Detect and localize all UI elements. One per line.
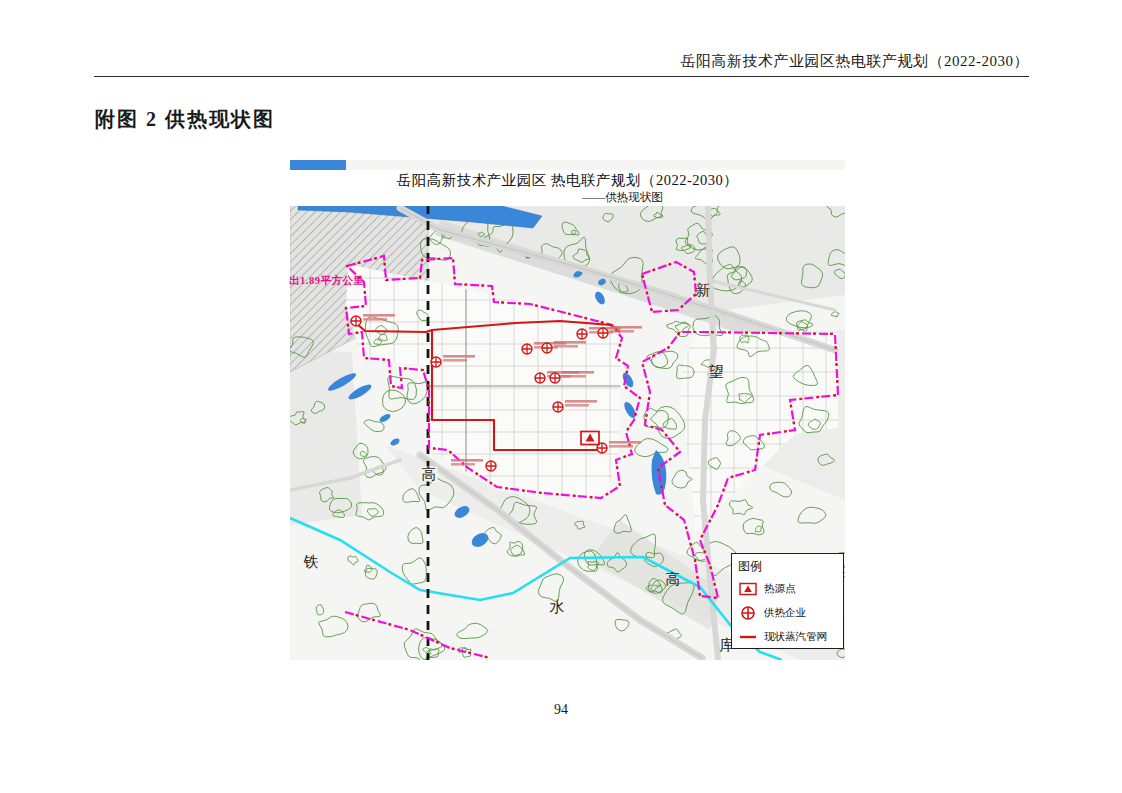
map-place-label: 新 (696, 283, 711, 298)
legend-item: 现状蒸汽管网 (738, 625, 837, 649)
legend-item-label: 供热企业 (764, 606, 806, 620)
area-note-label: 出1.89平方公里 (289, 274, 364, 288)
header-rule (94, 76, 1029, 77)
figure-caption: 附图 2 供热现状图 (95, 106, 275, 133)
map-title: 岳阳高新技术产业园区 热电联产规划（2022-2030） (290, 171, 845, 190)
legend-item-label: 热源点 (764, 582, 796, 596)
map-place-label: 高 (421, 467, 438, 482)
legend-item-label: 现状蒸汽管网 (764, 630, 827, 644)
legend-rows: 热源点供热企业现状蒸汽管网 (738, 577, 837, 649)
document-page: 岳阳高新技术产业园区热电联产规划（2022-2030） 附图 2 供热现状图 岳… (0, 0, 1122, 793)
heat-source-icon (738, 580, 764, 598)
legend-item: 热源点 (738, 577, 837, 601)
map-place-label: 高 (666, 572, 681, 587)
map-place-label: 望 (709, 365, 724, 380)
map-place-label: 铁 (304, 555, 319, 570)
heating-enterprise-icon (738, 604, 764, 622)
legend-title: 图例 (738, 558, 837, 575)
page-number: 94 (0, 702, 1122, 718)
map-subtitle: ——供热现状图 (345, 190, 900, 205)
heating-status-map: 岳阳高新技术产业园区 热电联产规划（2022-2030） ——供热现状图 出1.… (290, 160, 845, 660)
steam-pipeline-icon (738, 628, 764, 646)
document-header-title: 岳阳高新技术产业园区热电联产规划（2022-2030） (94, 52, 1029, 71)
legend-item: 供热企业 (738, 601, 837, 625)
map-place-label: 水 (550, 600, 565, 615)
heat-source-marker (581, 432, 599, 445)
map-legend: 图例 热源点供热企业现状蒸汽管网 (731, 553, 844, 649)
map-title-band: 岳阳高新技术产业园区 热电联产规划（2022-2030） ——供热现状图 (290, 170, 845, 206)
